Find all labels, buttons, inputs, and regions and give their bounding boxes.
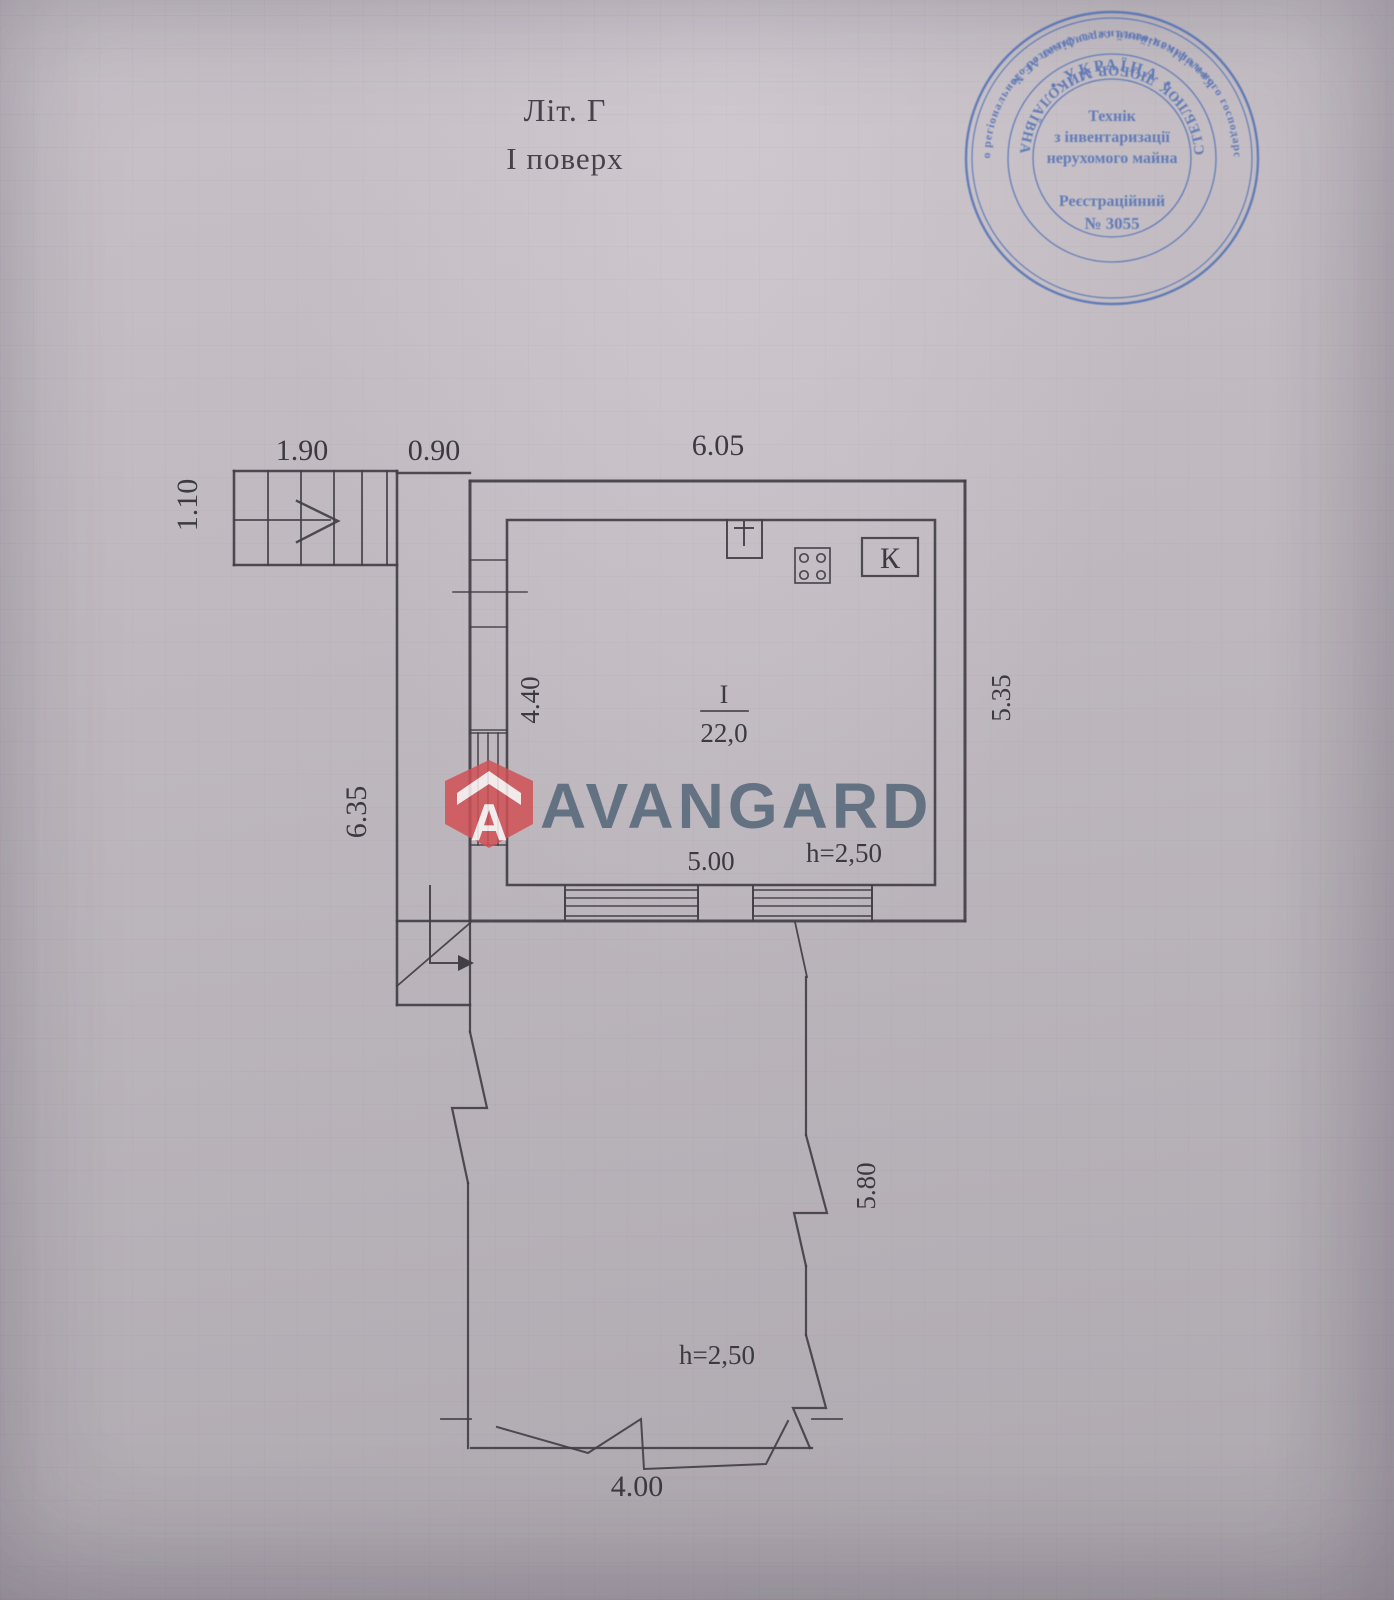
stamp-center-line5: № 3055 — [1084, 214, 1139, 233]
dim-gap: 0.90 — [408, 434, 461, 467]
dim-terrace-right: 5.80 — [851, 1162, 881, 1209]
round-stamp: Міністерство регіонального розвитку та ж… — [946, 0, 1286, 330]
watermark-logo-letter: A — [470, 794, 508, 848]
terrace-outline — [441, 921, 842, 1469]
break-symbol-right — [794, 1135, 827, 1266]
room-number-label: І — [720, 680, 729, 709]
stove-icon — [795, 548, 830, 583]
window-bottom-left-icon — [565, 886, 698, 920]
terrace-height-label: h=2,50 — [679, 1340, 755, 1370]
door-swing-line — [795, 922, 807, 977]
staircase — [234, 471, 470, 565]
dimension-labels: 1.90 0.90 6.05 1.10 6.35 4.40 5.35 5.00 … — [171, 429, 1016, 1503]
break-symbol-left — [452, 1032, 487, 1183]
dim-top: 6.05 — [692, 429, 745, 462]
dim-stairs-depth: 1.10 — [171, 479, 204, 532]
dim-room-left: 4.40 — [515, 676, 545, 723]
stamp-center-line3: нерухомого майна — [1047, 150, 1178, 167]
stamp-center-text: Технік з інвентаризації нерухомого майна… — [1047, 108, 1178, 233]
break-symbol-right-lower — [793, 1335, 826, 1448]
plan-walls — [234, 471, 965, 1469]
watermark-logo: A — [443, 760, 535, 848]
dim-corridor: 6.35 — [340, 786, 373, 839]
dim-right: 5.35 — [986, 674, 1016, 721]
stamp-center-line2: з інвентаризації — [1054, 129, 1170, 146]
dim-terrace-bottom: 4.00 — [611, 1470, 664, 1503]
stamp-center-line1: Технік — [1088, 108, 1137, 125]
window-bottom-right-icon — [753, 886, 872, 920]
entrance-ramp-line — [397, 923, 470, 986]
side-passage — [397, 471, 474, 1005]
stairs-direction-arrow-icon — [297, 501, 338, 542]
entrance-arrow-line — [430, 886, 458, 963]
kitchen-marker-label: К — [880, 542, 901, 575]
break-symbol-bottom — [497, 1419, 788, 1469]
dim-stairs-width: 1.90 — [276, 434, 329, 467]
stamp-ink-group: Міністерство регіонального розвитку та ж… — [946, 0, 1258, 304]
entrance-arrow-icon — [458, 955, 474, 971]
flue-icon — [727, 520, 762, 558]
watermark-brand-text: AVANGARD — [540, 769, 932, 843]
watermark: A AVANGARD — [443, 756, 963, 851]
room-area-label: 22,0 — [700, 718, 747, 748]
scanned-floor-plan-page: Літ. Г І поверх — [0, 0, 1394, 1600]
stamp-center-line4: Реєстраційний — [1059, 193, 1165, 210]
